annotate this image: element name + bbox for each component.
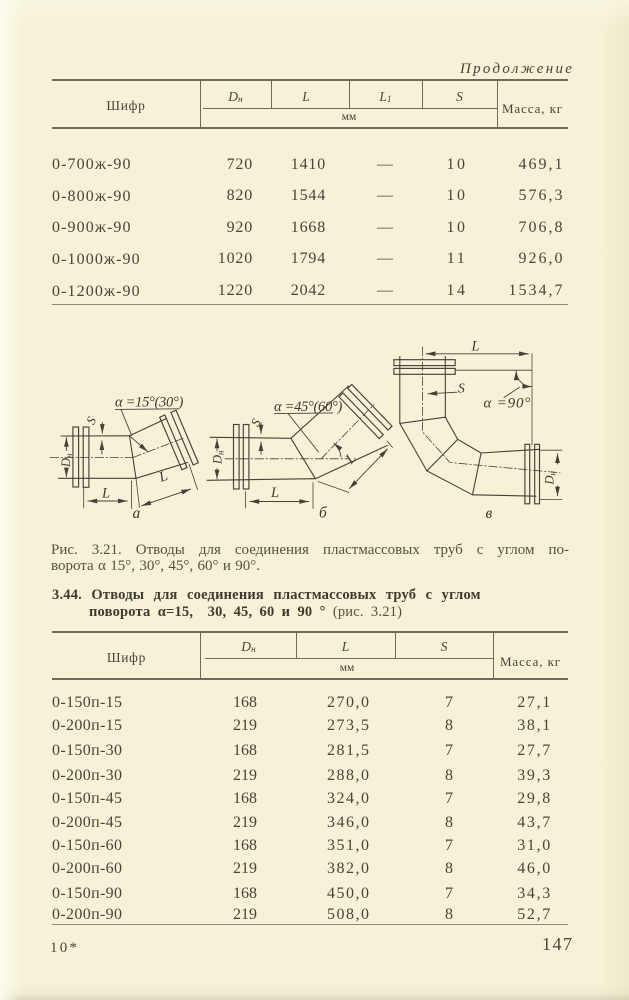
svg-text:L: L bbox=[471, 339, 480, 355]
svg-text:в: в bbox=[486, 505, 493, 522]
svg-text:а: а bbox=[133, 505, 141, 522]
svg-text:S: S bbox=[458, 381, 465, 396]
svg-text:S: S bbox=[247, 416, 264, 429]
svg-text:S: S bbox=[83, 414, 100, 427]
svg-text:α =15°(30°): α =15°(30°) bbox=[115, 394, 183, 410]
svg-text:б: б bbox=[319, 505, 328, 522]
svg-text:Dн: Dн bbox=[59, 453, 74, 468]
svg-text:Dн: Dн bbox=[543, 470, 558, 485]
svg-text:Dн: Dн bbox=[211, 450, 226, 465]
svg-text:L: L bbox=[101, 486, 110, 502]
svg-text:L: L bbox=[270, 485, 279, 501]
svg-text:α =45°(60°): α =45°(60°) bbox=[274, 399, 342, 415]
svg-text:α =90°: α =90° bbox=[484, 395, 532, 411]
svg-text:L: L bbox=[156, 468, 170, 486]
